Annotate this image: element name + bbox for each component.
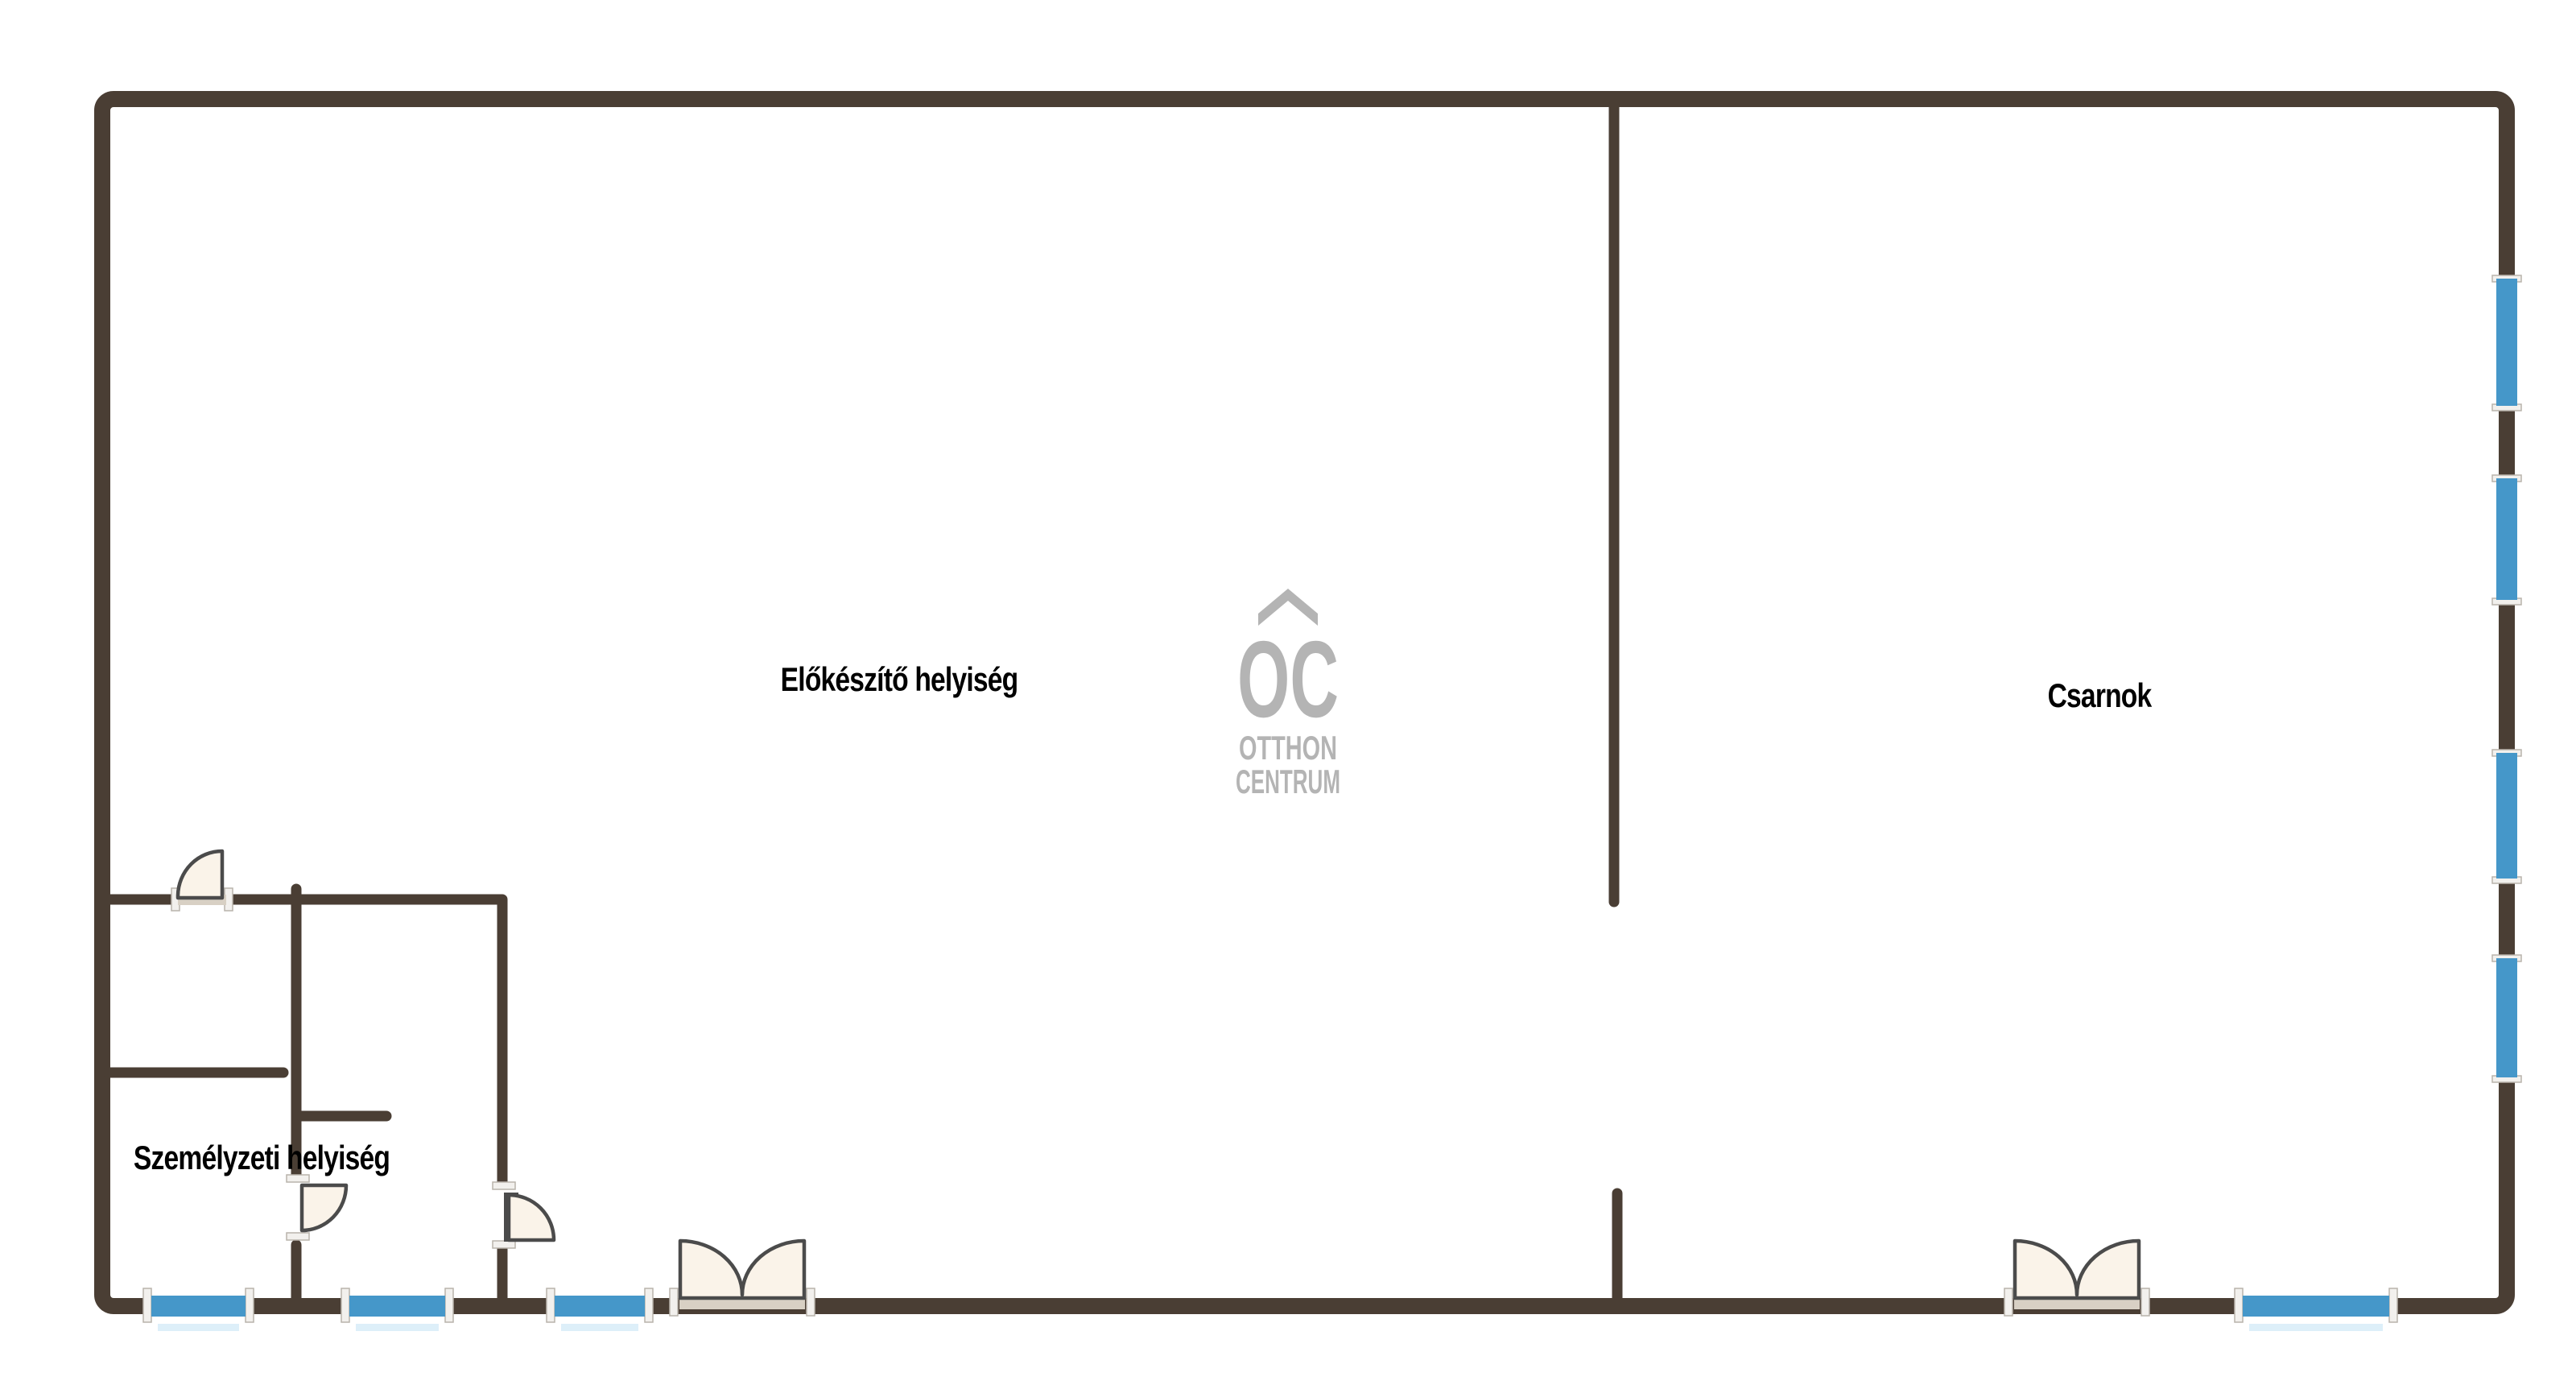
door-swing (509, 1195, 554, 1240)
window-bracket (246, 1288, 254, 1322)
door-swing (2015, 1241, 2139, 1298)
logo-line1: OTTHON (1239, 729, 1337, 767)
door-bracket (287, 1233, 309, 1240)
door-bracket (807, 1288, 815, 1316)
room-label-szemelyzeti: Személyzeti helyiség (134, 1140, 390, 1177)
floor-plan-page: OC OTTHON CENTRUM Előkészítő helyiség Cs… (0, 0, 2576, 1385)
window-bracket (547, 1288, 555, 1322)
door-swing (680, 1241, 804, 1298)
single-door-middle-icon (287, 1175, 346, 1240)
otthon-centrum-logo: OC OTTHON CENTRUM (1236, 589, 1340, 800)
logo-line2: CENTRUM (1236, 763, 1340, 800)
window-bottom-3 (555, 1296, 645, 1317)
window-bottom-2 (349, 1296, 445, 1317)
window-right-2 (2496, 478, 2517, 600)
door-swing (178, 851, 222, 898)
window-shadow (356, 1324, 439, 1331)
double-door-left-icon (670, 1241, 815, 1316)
floor-plan-drawing: OC OTTHON CENTRUM Előkészítő helyiség Cs… (0, 0, 2576, 1385)
window-bottom-1 (151, 1296, 246, 1317)
window-bracket (341, 1288, 349, 1322)
door-bracket (2141, 1288, 2149, 1316)
window-right-4 (2496, 958, 2517, 1077)
window-bracket (2389, 1288, 2397, 1322)
door-swing (302, 1185, 346, 1230)
room-label-csarnok: Csarnok (2048, 678, 2153, 715)
window-right-1 (2496, 279, 2517, 406)
window-bracket (2235, 1288, 2243, 1322)
room-label-elokeszito: Előkészítő helyiség (781, 662, 1018, 699)
door-bracket (493, 1241, 515, 1248)
window-bracket (143, 1288, 151, 1322)
window-right-3 (2496, 753, 2517, 879)
double-door-right-icon (2004, 1241, 2149, 1316)
window-bracket (445, 1288, 453, 1322)
window-bracket (645, 1288, 653, 1322)
door-bracket (493, 1182, 515, 1189)
single-door-right-icon (493, 1182, 554, 1248)
door-bracket (2004, 1288, 2013, 1316)
window-shadow (158, 1324, 239, 1331)
logo-monogram: OC (1237, 618, 1339, 740)
window-bottom-4 (2243, 1296, 2389, 1317)
room-labels: Előkészítő helyiség Csarnok Személyzeti … (134, 662, 2153, 1177)
single-door-top-icon (171, 851, 233, 911)
window-shadow (2249, 1324, 2383, 1331)
doors (171, 851, 2149, 1316)
window-shadow (561, 1324, 638, 1331)
door-bracket (670, 1288, 678, 1316)
